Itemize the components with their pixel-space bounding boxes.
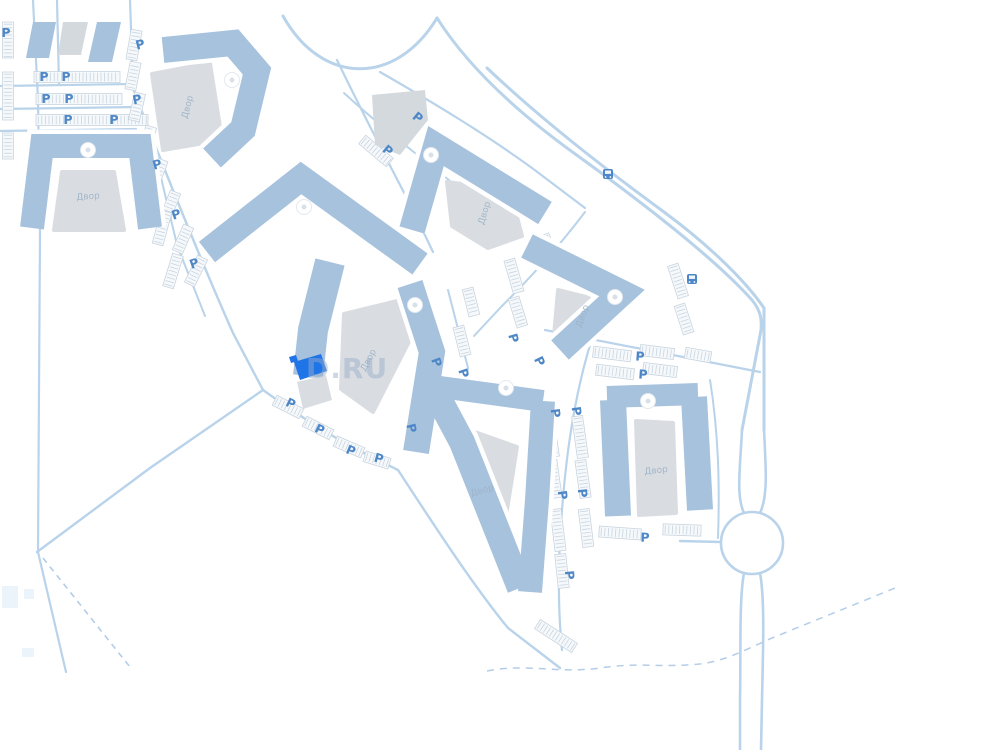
- parking-icon[interactable]: P: [569, 405, 585, 416]
- building-block[interactable]: [26, 22, 56, 58]
- road: [760, 430, 766, 513]
- building-band[interactable]: [530, 401, 543, 592]
- parking-stalls: [453, 325, 471, 357]
- building-section[interactable]: [297, 375, 332, 409]
- road: [739, 430, 744, 513]
- parking-icon[interactable]: P: [548, 407, 564, 418]
- road: [0, 107, 134, 109]
- boundary-dashed-line: [43, 558, 130, 667]
- parking-icon[interactable]: P: [41, 91, 50, 106]
- building-band[interactable]: [440, 387, 543, 401]
- road: [740, 573, 744, 750]
- entrance-marker[interactable]: [81, 143, 96, 158]
- road: [37, 390, 263, 552]
- building-band[interactable]: [694, 397, 700, 510]
- bus-stop-icon[interactable]: [687, 274, 697, 284]
- ground-patches: [2, 586, 34, 657]
- road: [760, 573, 763, 750]
- parking-stalls: [668, 263, 689, 299]
- parking-stalls: [3, 72, 14, 120]
- parking-stalls: [125, 61, 141, 91]
- entrance-marker[interactable]: [424, 148, 439, 163]
- parking-stalls: [663, 524, 701, 536]
- parking-stalls: [572, 415, 589, 458]
- parking-icon[interactable]: P: [109, 112, 118, 127]
- road: [0, 84, 133, 86]
- parking-icon[interactable]: P: [638, 366, 648, 382]
- building-block[interactable]: [58, 22, 88, 55]
- ground-patch: [22, 648, 34, 657]
- ground-patch: [24, 589, 34, 599]
- parking-icon[interactable]: P: [562, 570, 578, 580]
- entrance-marker[interactable]: [641, 394, 656, 409]
- parking-stalls: [599, 526, 642, 540]
- entrance-marker[interactable]: [297, 200, 312, 215]
- map-canvas[interactable]: PPPPPPPPPPPPPPPPPPPPPPPPPPPPPPPДворДворД…: [0, 0, 1000, 750]
- parking-stalls: [595, 364, 634, 380]
- entrance-marker[interactable]: [225, 73, 240, 88]
- parking-icon[interactable]: P: [64, 91, 73, 106]
- parking-stalls: [535, 619, 578, 652]
- bus-stop-icon[interactable]: [603, 169, 613, 179]
- parking-icon[interactable]: P: [531, 354, 549, 369]
- entrance-marker[interactable]: [408, 298, 423, 313]
- building-block[interactable]: [88, 22, 121, 62]
- parking-stalls: [163, 253, 183, 289]
- parking-stalls: [592, 346, 631, 362]
- parking-icon[interactable]: P: [1, 25, 10, 40]
- entrance-marker[interactable]: [608, 290, 623, 305]
- parking-icon[interactable]: P: [39, 69, 48, 84]
- parking-icon[interactable]: P: [555, 490, 571, 501]
- parking-stalls: [684, 347, 712, 362]
- ground-patch: [2, 586, 18, 608]
- roundabout: [721, 512, 783, 574]
- parking-icon[interactable]: P: [61, 69, 70, 84]
- map-viewport[interactable]: PPPPPPPPPPPPPPPPPPPPPPPPPPPPPPPДворДворД…: [0, 0, 1000, 750]
- parking-icon[interactable]: P: [640, 530, 650, 545]
- parking-icon[interactable]: P: [63, 112, 72, 127]
- parking-icon[interactable]: P: [505, 332, 522, 345]
- parking-stalls: [674, 303, 694, 335]
- parking-stalls: [578, 508, 594, 547]
- entrance-marker[interactable]: [499, 381, 514, 396]
- parking-stalls: [462, 287, 479, 317]
- estate-map-svg: PPPPPPPPPPPPPPPPPPPPPPPPPPPPPPPДворДворД…: [0, 0, 1000, 750]
- parking-stalls: [3, 133, 14, 159]
- parking-icon[interactable]: P: [575, 488, 591, 499]
- building-band[interactable]: [613, 400, 618, 516]
- parking-stalls: [504, 258, 524, 294]
- parking-stalls: [508, 296, 527, 328]
- road: [680, 541, 721, 542]
- road: [283, 16, 437, 69]
- parking-icon[interactable]: P: [635, 348, 645, 364]
- courtyard-label: Двор: [76, 191, 100, 203]
